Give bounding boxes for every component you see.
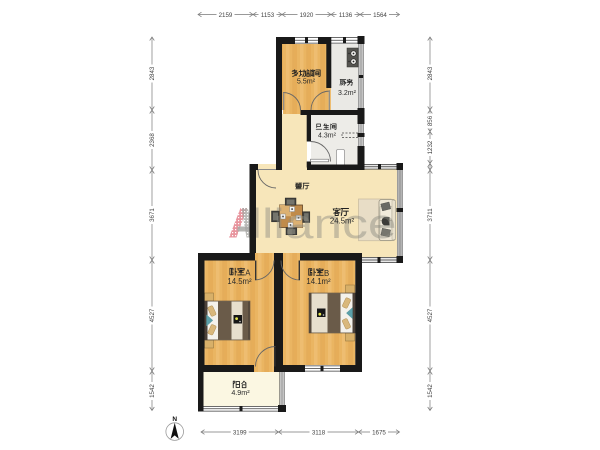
svg-text:4527: 4527 [149,308,156,322]
svg-text:2843: 2843 [149,66,156,80]
svg-text:1542: 1542 [149,384,156,398]
svg-text:4.3m²: 4.3m² [318,133,337,140]
svg-text:1136: 1136 [339,12,353,19]
svg-text:1542: 1542 [427,384,434,398]
svg-text:1920: 1920 [300,12,314,19]
svg-text:1564: 1564 [373,12,387,19]
svg-text:lliance: lliance [251,200,397,247]
svg-text:3711: 3711 [427,208,434,222]
svg-text:3199: 3199 [233,430,247,437]
svg-text:14.1m²: 14.1m² [306,277,331,286]
svg-text:3671: 3671 [149,208,156,222]
svg-text:856: 856 [427,115,434,126]
svg-text:3.2m²: 3.2m² [338,90,357,97]
svg-text:3118: 3118 [312,430,326,437]
svg-text:2843: 2843 [427,66,434,80]
svg-text:14.5m²: 14.5m² [227,277,252,286]
svg-text:4527: 4527 [427,308,434,322]
svg-text:N: N [172,416,177,423]
svg-text:1675: 1675 [372,430,386,437]
svg-text:4.9m²: 4.9m² [231,388,250,397]
svg-text:2159: 2159 [219,12,233,19]
svg-text:24.5m²: 24.5m² [330,216,355,225]
svg-text:1153: 1153 [261,12,275,19]
svg-text:1232: 1232 [427,140,434,154]
svg-text:5.5m²: 5.5m² [297,77,316,86]
svg-text:2368: 2368 [149,133,156,147]
